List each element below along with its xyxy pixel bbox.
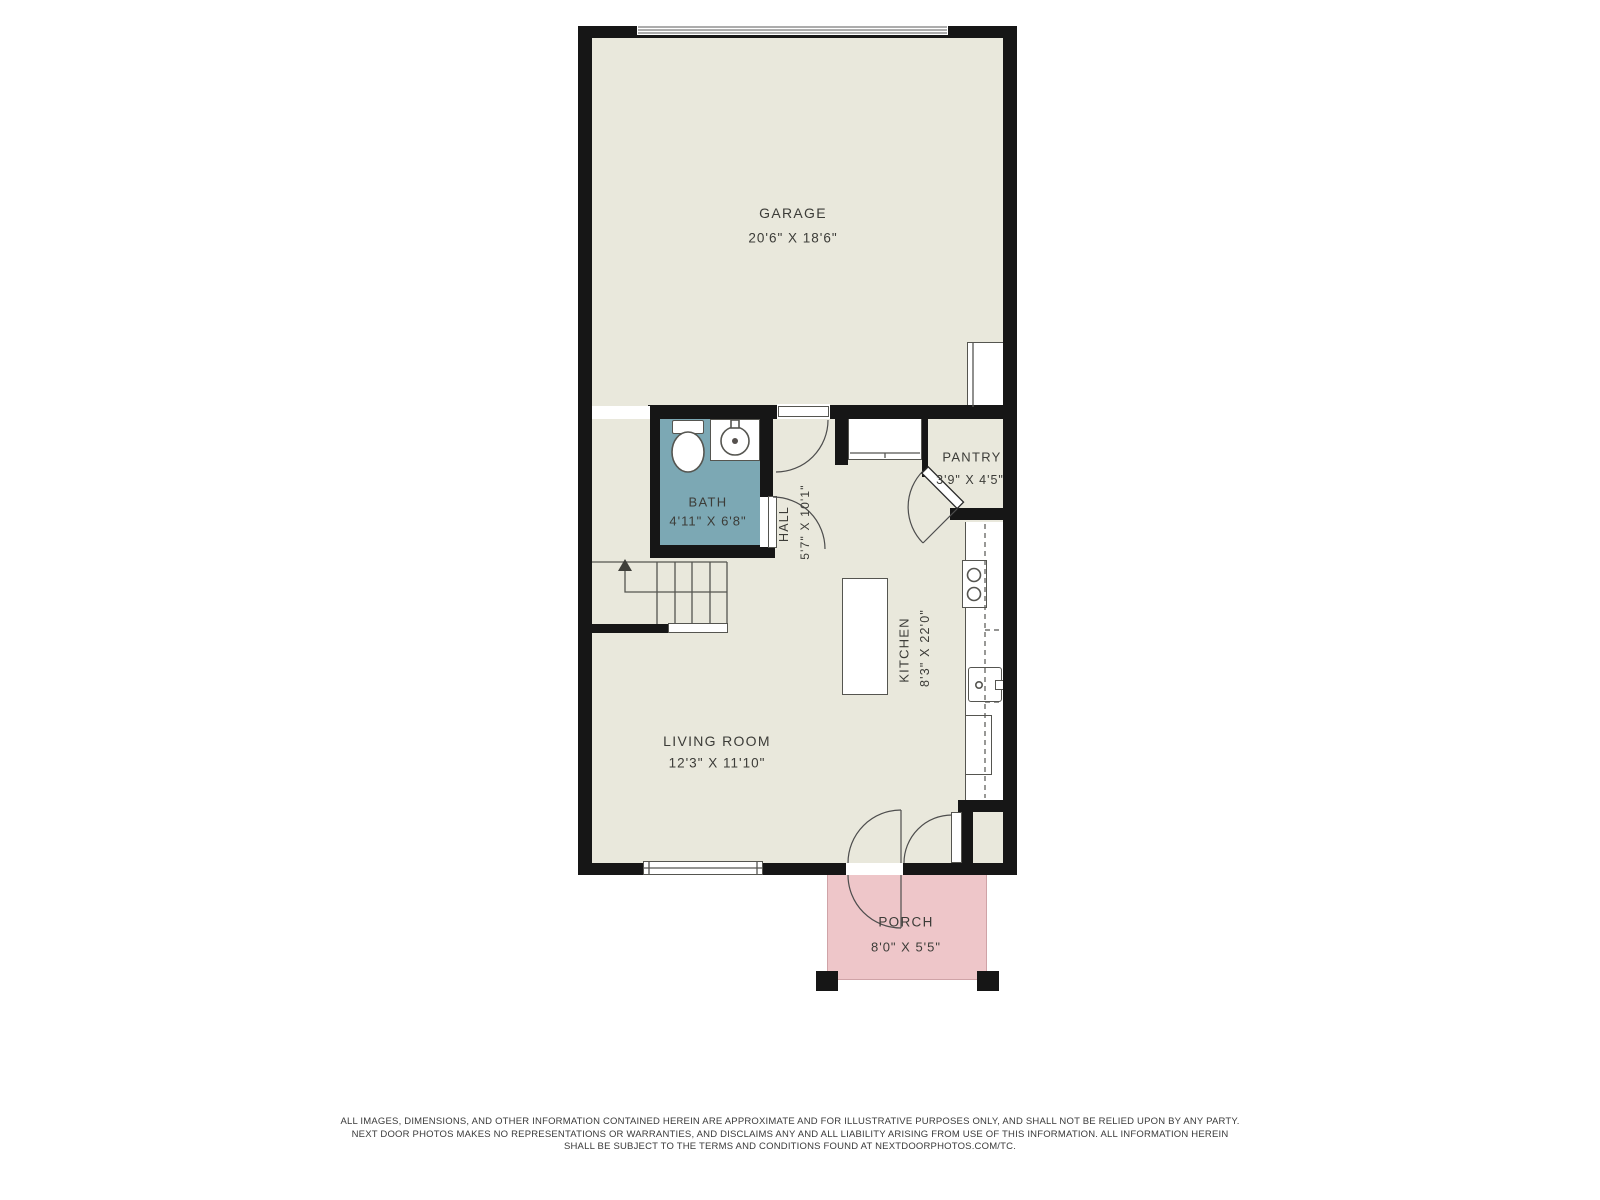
bath-dims: 4'11" X 6'8" — [669, 514, 746, 529]
living-room-window — [643, 861, 763, 875]
stove — [962, 560, 987, 608]
living-room-label: LIVING ROOM — [663, 733, 771, 749]
porch-label: PORCH — [878, 915, 933, 930]
garage-label: GARAGE — [759, 205, 827, 221]
kitchen-island — [842, 578, 888, 695]
kitchen-dims: 8'3" X 22'0" — [918, 609, 932, 687]
pantry-wall-left — [922, 413, 928, 477]
garage-landing-opening — [592, 406, 650, 419]
garage-hall-door-leaf — [778, 406, 829, 417]
exterior-wall-right — [1003, 26, 1017, 875]
toilet-tank — [672, 420, 704, 434]
garage-south-wall-right — [830, 405, 1003, 419]
bath-label: BATH — [689, 495, 728, 510]
disclaimer-line-3: SHALL BE SUBJECT TO THE TERMS AND CONDIT… — [140, 1141, 1440, 1154]
hall-dims: 5'7" X 10'1" — [798, 484, 812, 560]
kitchen-label: KITCHEN — [897, 617, 912, 682]
garage-door — [637, 24, 948, 35]
garage-utility-closet — [967, 342, 1005, 408]
disclaimer-line-1: ALL IMAGES, DIMENSIONS, AND OTHER INFORM… — [140, 1116, 1440, 1129]
front-door-opening — [846, 863, 903, 875]
living-room-dims: 12'3" X 11'10" — [669, 756, 766, 771]
porch-dims: 8'0" X 5'5" — [871, 940, 941, 955]
closet-wall-stub — [835, 413, 848, 465]
pantry-dims: 3'9" X 4'5" — [936, 473, 1004, 487]
stair-wall-bottom — [592, 624, 668, 633]
exterior-wall-left — [578, 26, 592, 875]
porch-post-right — [977, 971, 999, 991]
bath-wall-left — [650, 405, 660, 558]
bath-wall-bottom — [650, 545, 775, 558]
porch-post-left — [816, 971, 838, 991]
entry-closet-wall-top — [958, 800, 1003, 812]
stair-bottom-tread — [668, 623, 728, 633]
counter-cabinet — [965, 715, 992, 775]
bath-wall-right — [760, 405, 773, 500]
pantry-wall-bottom — [950, 508, 1003, 520]
disclaimer-line-2: NEXT DOOR PHOTOS MAKES NO REPRESENTATION… — [140, 1129, 1440, 1142]
hall-label: HALL — [777, 506, 791, 542]
disclaimer: ALL IMAGES, DIMENSIONS, AND OTHER INFORM… — [140, 1116, 1440, 1154]
hall-closet — [848, 418, 922, 460]
entry-closet-wall-left — [962, 812, 973, 863]
pantry-label: PANTRY — [942, 450, 1001, 465]
garage-dims: 20'6" X 18'6" — [748, 231, 837, 246]
bath-door-leaf — [768, 496, 777, 548]
floor-plan: GARAGE 20'6" X 18'6" BATH 4'11" X 6'8" H… — [0, 0, 1600, 1200]
garage-south-wall-left — [648, 405, 777, 419]
entry-closet-door-leaf — [951, 812, 962, 863]
bath-vanity — [710, 419, 760, 461]
